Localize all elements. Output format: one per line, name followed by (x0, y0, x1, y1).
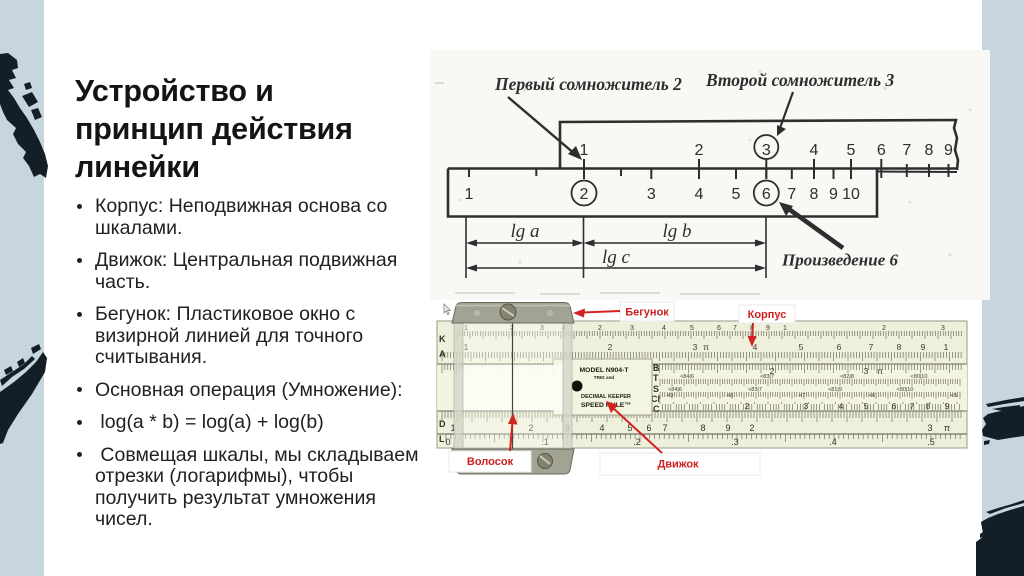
svg-text:<9: <9 (667, 393, 673, 399)
svg-text:<6: <6 (869, 393, 875, 399)
svg-text:3: 3 (941, 325, 945, 332)
svg-text:π: π (703, 342, 709, 352)
svg-text:lg c: lg c (602, 247, 631, 268)
svg-text:<8: <8 (727, 393, 733, 399)
svg-text:7: 7 (733, 325, 737, 332)
svg-text:2: 2 (695, 142, 704, 159)
svg-text:<82|8: <82|8 (840, 374, 854, 380)
svg-text:3: 3 (804, 401, 809, 411)
svg-text:Волосок: Волосок (467, 456, 514, 468)
svg-text:5: 5 (799, 342, 804, 352)
svg-text:6: 6 (717, 325, 721, 332)
svg-text:5: 5 (690, 325, 694, 332)
svg-text:S: S (653, 384, 659, 394)
svg-text:Второй сомножитель 3: Второй сомножитель 3 (705, 70, 895, 90)
svg-text:C: C (653, 404, 660, 414)
svg-text:3: 3 (693, 342, 698, 352)
svg-text:5: 5 (732, 186, 741, 203)
svg-text:Корпус: Корпус (748, 309, 787, 321)
svg-text:.3: .3 (731, 437, 739, 447)
svg-text:4: 4 (662, 325, 666, 332)
svg-text:8: 8 (810, 186, 819, 203)
svg-text:3: 3 (647, 186, 656, 203)
svg-text:DECIMAL KEEPER: DECIMAL KEEPER (581, 394, 631, 400)
svg-text:L: L (439, 434, 445, 444)
svg-text:Движок: Движок (657, 459, 699, 471)
svg-text:K: K (439, 334, 446, 344)
svg-text:2: 2 (745, 401, 750, 411)
svg-text:10: 10 (842, 186, 860, 203)
svg-text:8: 8 (897, 342, 902, 352)
svg-text:6: 6 (892, 401, 897, 411)
svg-text:6: 6 (837, 342, 842, 352)
svg-text:lg a: lg a (510, 221, 539, 242)
svg-text:T: T (653, 373, 659, 383)
svg-text:8: 8 (925, 142, 934, 159)
svg-text:2: 2 (749, 423, 754, 433)
svg-text:<80|10: <80|10 (911, 374, 928, 380)
svg-text:7: 7 (662, 423, 667, 433)
svg-text:1: 1 (465, 186, 474, 203)
svg-text:0: 0 (445, 437, 450, 447)
svg-text:TRIG and: TRIG and (594, 375, 615, 380)
svg-text:9: 9 (725, 423, 730, 433)
svg-text:<5: <5 (951, 393, 957, 399)
svg-text:7: 7 (910, 401, 915, 411)
svg-text:<84|6: <84|6 (680, 374, 694, 380)
svg-text:B: B (653, 363, 660, 373)
svg-text:.2: .2 (633, 437, 641, 447)
svg-text:4: 4 (810, 142, 819, 159)
svg-text:π: π (877, 366, 883, 376)
svg-text:<81|9: <81|9 (828, 387, 842, 393)
svg-text:9: 9 (766, 325, 770, 332)
svg-text:MODEL N904-T: MODEL N904-T (580, 367, 630, 374)
svg-text:A: A (439, 349, 446, 359)
svg-text:9: 9 (829, 186, 838, 203)
svg-text:8: 8 (926, 401, 931, 411)
svg-text:6: 6 (877, 142, 886, 159)
svg-text:8: 8 (700, 423, 705, 433)
svg-text:π: π (944, 423, 950, 433)
svg-text:<83|7: <83|7 (760, 374, 774, 380)
svg-text:SPEED RULE™: SPEED RULE™ (581, 402, 631, 409)
svg-text:D: D (439, 419, 446, 429)
svg-text:3: 3 (927, 423, 932, 433)
svg-text:Произведение 6: Произведение 6 (781, 251, 898, 270)
svg-text:<7: <7 (799, 393, 805, 399)
svg-text:9: 9 (945, 401, 950, 411)
svg-text:2: 2 (882, 325, 886, 332)
svg-text:1: 1 (580, 142, 589, 159)
svg-text:2: 2 (608, 342, 613, 352)
svg-text:1: 1 (944, 342, 949, 352)
svg-text:1: 1 (783, 325, 787, 332)
svg-text:3: 3 (762, 142, 771, 159)
svg-text:2: 2 (598, 325, 602, 332)
svg-text:4: 4 (599, 423, 604, 433)
svg-text:4: 4 (839, 401, 844, 411)
svg-text:7: 7 (787, 186, 796, 203)
svg-text:4: 4 (695, 186, 704, 203)
svg-text:Первый сомножитель 2: Первый сомножитель 2 (494, 74, 682, 94)
svg-text:9: 9 (944, 142, 953, 159)
svg-text:6: 6 (762, 186, 771, 203)
svg-text:7: 7 (869, 342, 874, 352)
svg-text:.4: .4 (829, 437, 837, 447)
svg-text:5: 5 (847, 142, 856, 159)
svg-text:3: 3 (864, 366, 869, 376)
svg-text:5: 5 (864, 401, 869, 411)
svg-text:9: 9 (921, 342, 926, 352)
svg-text:7: 7 (902, 142, 911, 159)
svg-text:2: 2 (580, 186, 589, 203)
svg-text:<80|10: <80|10 (897, 387, 914, 393)
svg-text:<83|7: <83|7 (748, 387, 762, 393)
svg-text:6: 6 (646, 423, 651, 433)
svg-text:Бегунок: Бегунок (625, 307, 669, 319)
svg-text:.5: .5 (927, 437, 935, 447)
svg-text:lg b: lg b (662, 221, 691, 242)
svg-text:3: 3 (630, 325, 634, 332)
